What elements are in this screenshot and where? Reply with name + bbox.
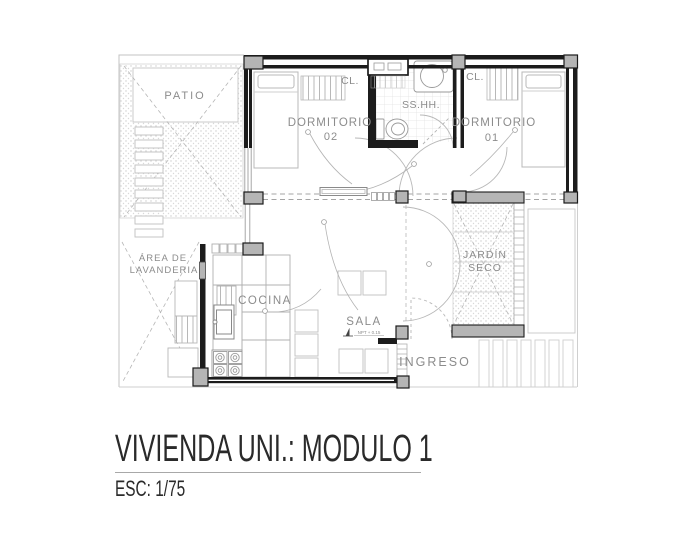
kitchen-label: COCINA [238, 295, 292, 307]
title-underline [115, 472, 421, 473]
sidewalk-pavement-bars [479, 340, 573, 387]
closet-left-hatch [301, 76, 345, 100]
bedroom-01-label-line1: DORMITORIO [452, 117, 537, 129]
bathroom-label: SS.HH. [402, 99, 440, 111]
living-room-label: SALA [346, 316, 381, 328]
dry-garden-label-line2: SECO [468, 262, 502, 274]
drawing-scale: ESC: 1/75 [115, 478, 452, 500]
laundry-label-line2: LAVANDERIA [130, 265, 199, 276]
living-room-level-label: NPT + 0.15 [358, 330, 381, 335]
dry-garden-label-line1: JARDÍN [463, 248, 507, 261]
shower-unit [368, 59, 408, 88]
drawing-title: VIVIENDA UNI.: MODULO 1 [115, 431, 433, 467]
title-block: VIVIENDA UNI.: MODULO 1 ESC: 1/75 [115, 431, 596, 500]
entrance-label: INGRESO [399, 355, 471, 369]
kitchen-sink [213, 305, 234, 339]
kitchen-stove [212, 350, 242, 377]
floor-plan-canvas: PATIO ÁREA DE LAVANDERIA DORMITORIO 02 D… [0, 0, 680, 544]
terrace-outline [528, 209, 575, 333]
entry-door-arc [411, 298, 452, 339]
patio-label: PATIO [164, 90, 205, 102]
closet-left-label: CL. [341, 75, 359, 87]
bedroom-02-label-line2: 02 [324, 131, 338, 143]
toilet-tank [376, 119, 384, 139]
patio-slats [135, 127, 163, 237]
closet-right-hatch [487, 68, 518, 100]
sliding-door-rail [320, 188, 395, 201]
kitchen-window-block [200, 262, 206, 279]
floor-plan-drawing: PATIO ÁREA DE LAVANDERIA DORMITORIO 02 D… [0, 0, 680, 430]
bedroom-01-label-line2: 01 [485, 132, 499, 144]
laundry-fixtures [168, 281, 198, 377]
closet-right-label: CL. [466, 71, 484, 83]
bedroom-02-label-line1: DORMITORIO [288, 117, 373, 129]
laundry-label-line1: ÁREA DE [139, 253, 187, 264]
bedroom-01-door-arc [462, 147, 507, 192]
